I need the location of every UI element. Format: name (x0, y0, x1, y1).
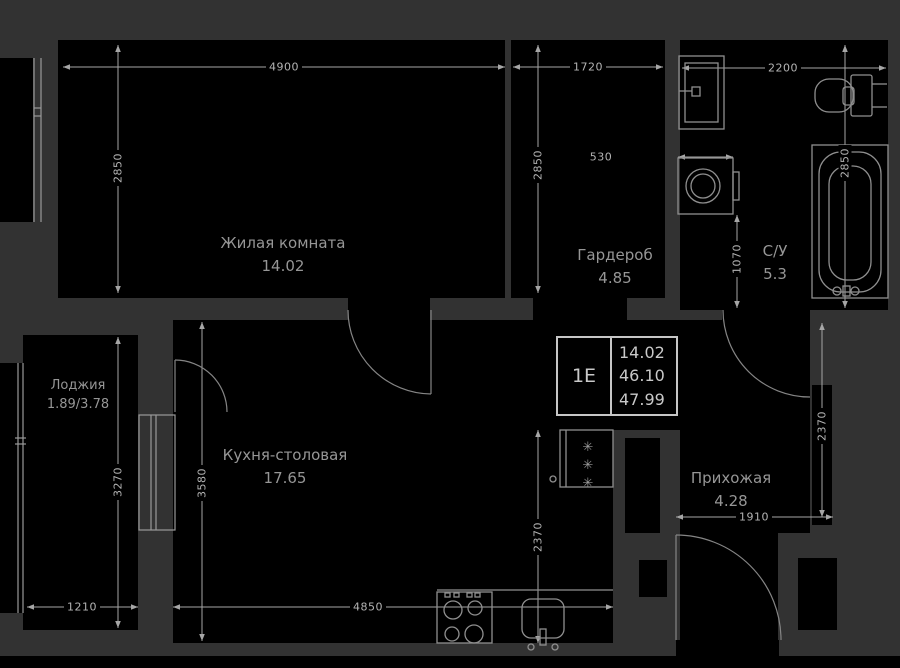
room-name: Гардероб (577, 244, 652, 267)
unit-info-box: 1Е 14.02 46.10 47.99 (556, 336, 678, 416)
room-label-loggia: Лоджия 1.89/3.78 (47, 376, 109, 414)
exterior-window-bay (0, 58, 33, 222)
dim-label-washer-width: 530 (587, 151, 616, 164)
dim-label-living-width: 4900 (266, 61, 302, 74)
dim-label-loggia-width: 1210 (64, 601, 100, 614)
unit-living-area: 46.10 (619, 366, 676, 385)
room-label-living: Жилая комната 14.02 (221, 232, 346, 278)
room-hallway-lower (680, 533, 778, 643)
window-living-room (34, 58, 41, 222)
wall-shaft-lower (639, 560, 667, 597)
exterior-loggia-bay (0, 363, 28, 613)
unit-label: 1Е (558, 338, 612, 414)
room-label-hallway: Прихожая 4.28 (691, 467, 771, 513)
wall-niche (798, 558, 837, 630)
dim-label-bathroom-width: 2200 (765, 62, 801, 75)
room-area: 5.3 (763, 263, 788, 286)
dim-label-bathroom-depth: 2850 (839, 145, 852, 181)
dim-label-kitchen-lower-depth: 2370 (532, 519, 545, 555)
dim-label-wardrobe-depth: 2850 (532, 147, 545, 183)
dim-label-hallway-depth: 2370 (816, 408, 829, 444)
room-name: Жилая комната (221, 232, 346, 255)
floor-plan: ✳ ✳ ✳ 4900 1720 2200 530 2850 2850 2850 … (0, 0, 900, 668)
wall-slot (812, 385, 832, 525)
doorway-wardrobe (533, 298, 627, 322)
room-name: Кухня-столовая (223, 444, 348, 467)
room-area: 4.85 (577, 267, 652, 290)
unit-room-area: 14.02 (619, 343, 676, 362)
room-name: Прихожая (691, 467, 771, 490)
room-name: Лоджия (47, 376, 109, 395)
room-label-bathroom: С/У 5.3 (763, 240, 788, 286)
room-label-kitchen: Кухня-столовая 17.65 (223, 444, 348, 490)
room-area: 1.89/3.78 (47, 395, 109, 414)
doorway-living-kitchen (348, 298, 430, 322)
dim-label-washer-clearance: 1070 (731, 241, 744, 277)
doorway-bathroom (722, 310, 810, 322)
room-label-wardrobe: Гардероб 4.85 (577, 244, 652, 290)
dim-label-loggia-depth: 3270 (112, 464, 125, 500)
unit-total-area: 47.99 (619, 390, 676, 409)
room-name: С/У (763, 240, 788, 263)
dim-label-wardrobe-width: 1720 (570, 61, 606, 74)
room-area: 14.02 (221, 255, 346, 278)
dim-label-kitchen-depth: 3580 (196, 465, 209, 501)
room-kitchen-hall-band (173, 320, 810, 430)
room-area: 4.28 (691, 490, 771, 513)
window-kitchen-loggia (139, 415, 175, 530)
dim-label-living-depth: 2850 (112, 150, 125, 186)
bottom-edge-strip (0, 656, 900, 668)
room-area: 17.65 (223, 467, 348, 490)
dim-label-kitchen-width: 4850 (350, 601, 386, 614)
wall-shaft-upper (625, 438, 660, 533)
